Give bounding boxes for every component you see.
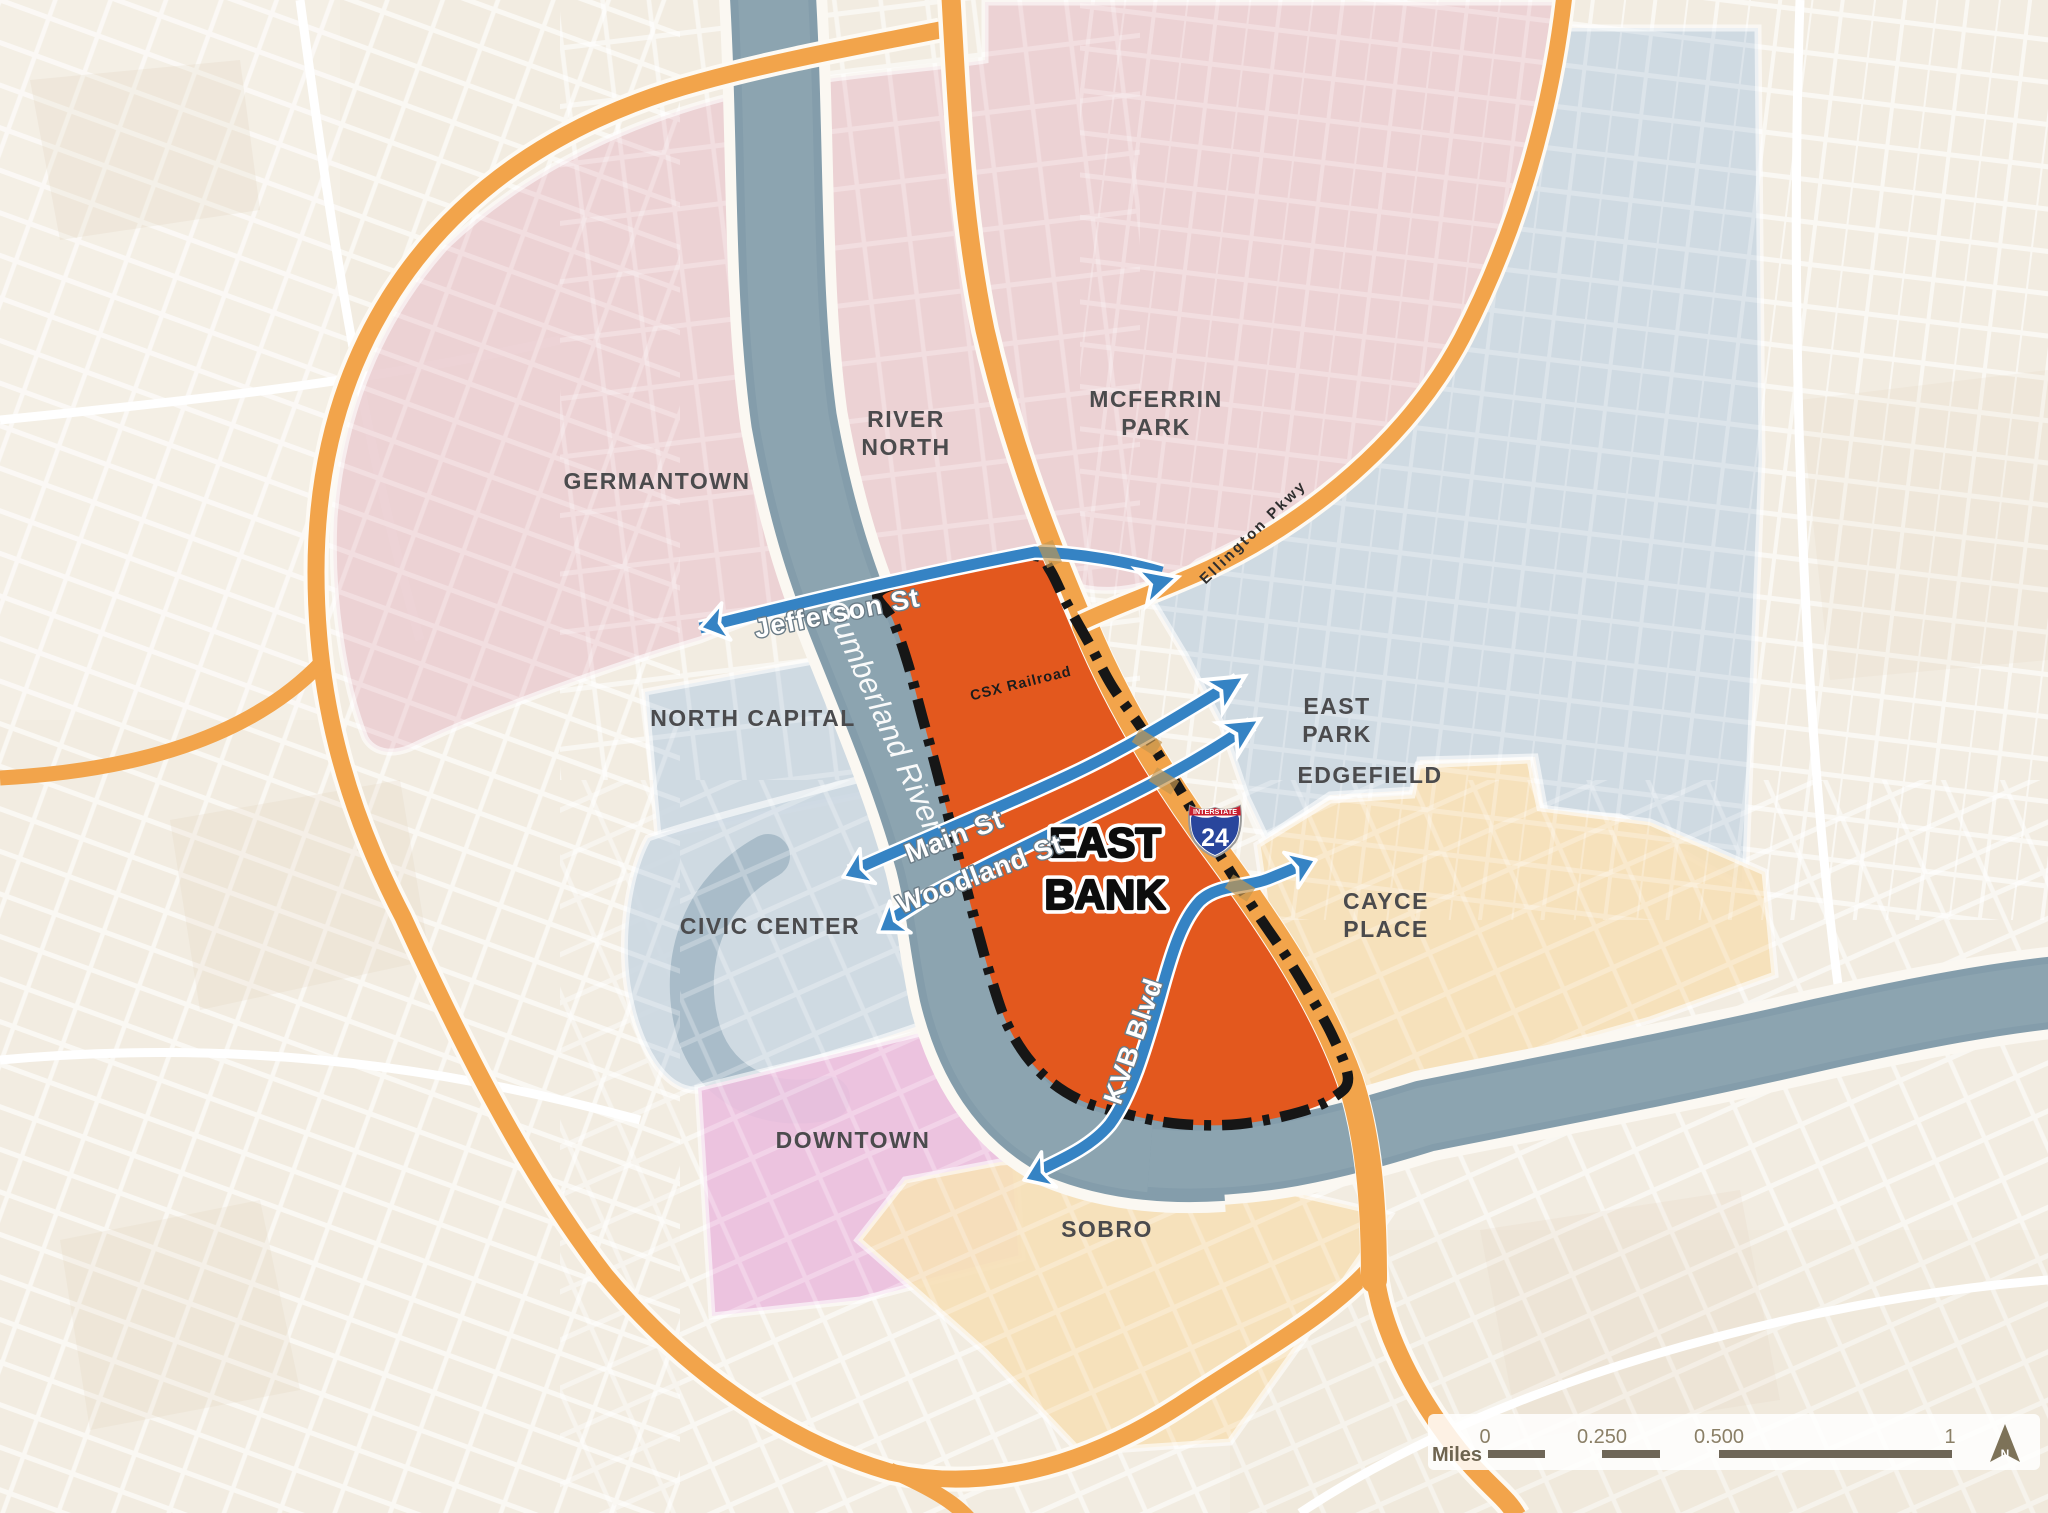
svg-text:RIVER: RIVER bbox=[867, 406, 945, 432]
svg-text:SOBRO: SOBRO bbox=[1061, 1216, 1153, 1242]
svg-text:0.500: 0.500 bbox=[1694, 1426, 1744, 1448]
svg-text:BANK: BANK bbox=[1044, 871, 1165, 918]
svg-text:PARK: PARK bbox=[1121, 414, 1190, 440]
svg-text:INTERSTATE: INTERSTATE bbox=[1193, 807, 1237, 816]
svg-text:1: 1 bbox=[1944, 1426, 1955, 1448]
svg-text:Miles: Miles bbox=[1432, 1444, 1482, 1466]
svg-text:CIVIC CENTER: CIVIC CENTER bbox=[680, 913, 860, 939]
svg-text:PARK: PARK bbox=[1302, 721, 1371, 747]
svg-text:PLACE: PLACE bbox=[1343, 916, 1428, 942]
svg-text:N: N bbox=[2001, 1447, 2010, 1461]
svg-text:NORTH: NORTH bbox=[861, 434, 950, 460]
svg-text:24: 24 bbox=[1201, 824, 1229, 852]
svg-text:EAST: EAST bbox=[1049, 819, 1161, 866]
svg-text:EAST: EAST bbox=[1303, 693, 1370, 719]
svg-text:NORTH CAPITAL: NORTH CAPITAL bbox=[650, 705, 856, 731]
svg-text:EDGEFIELD: EDGEFIELD bbox=[1297, 762, 1442, 788]
svg-text:GERMANTOWN: GERMANTOWN bbox=[563, 468, 750, 494]
svg-text:DOWNTOWN: DOWNTOWN bbox=[776, 1127, 931, 1153]
svg-text:MCFERRIN: MCFERRIN bbox=[1089, 386, 1222, 412]
svg-text:0.250: 0.250 bbox=[1577, 1426, 1627, 1448]
svg-text:0: 0 bbox=[1479, 1426, 1490, 1448]
svg-text:CAYCE: CAYCE bbox=[1343, 888, 1429, 914]
